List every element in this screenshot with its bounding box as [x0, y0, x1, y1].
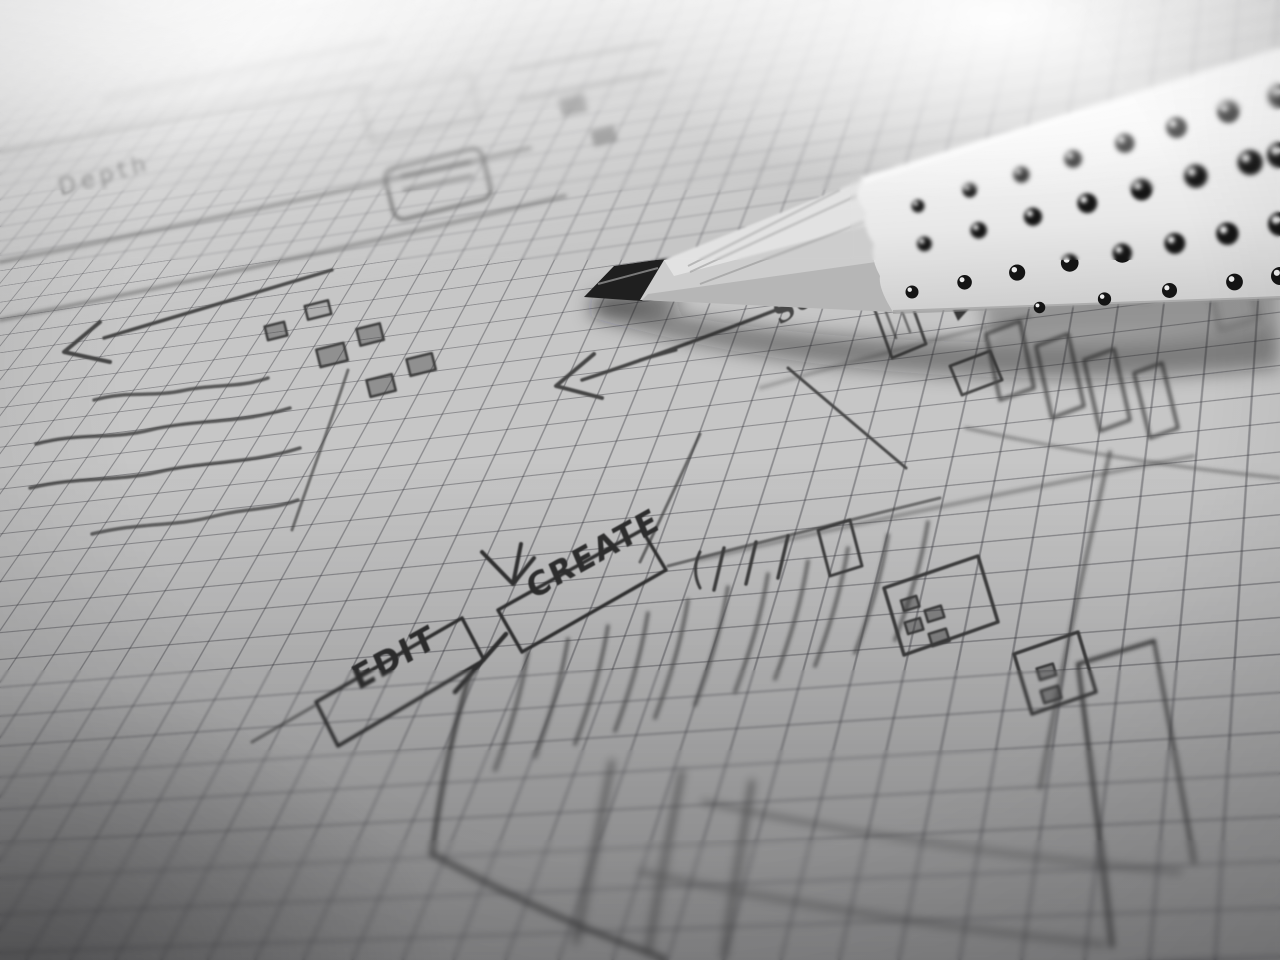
- pencil: [0, 0, 1280, 960]
- pencil-body: [858, 50, 1280, 313]
- wood-cone: [640, 180, 893, 312]
- photo-scene: Depth Search EDIT CREATE: [0, 0, 1280, 960]
